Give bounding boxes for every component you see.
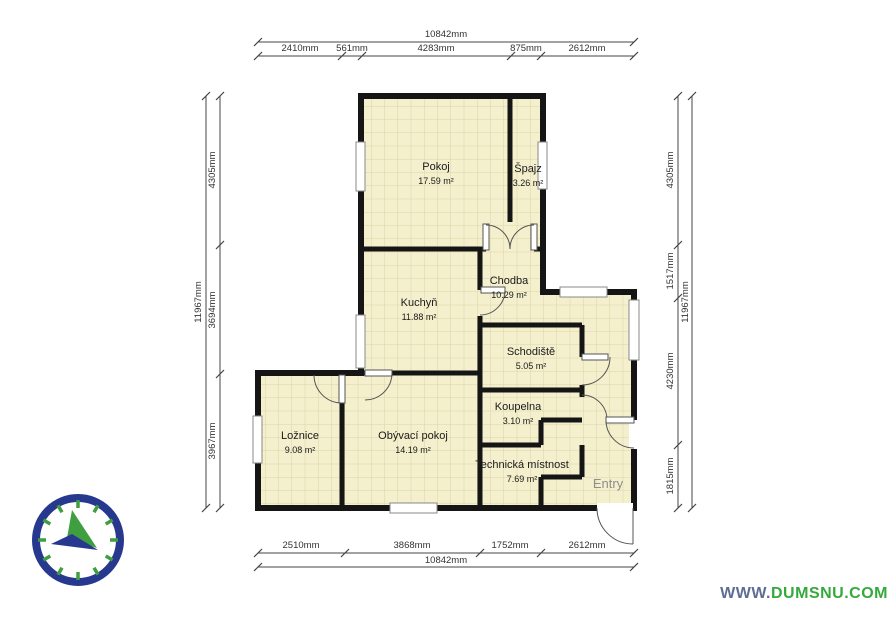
watermark-suffix: .COM	[844, 585, 888, 602]
floorplan-page: 10842mm 2410mm 561mm 4283mm 875mm 2612mm…	[0, 0, 894, 625]
floorplan-canvas: 10842mm 2410mm 561mm 4283mm 875mm 2612mm…	[0, 0, 894, 625]
dim-right-seg-1: 1517mm	[665, 252, 676, 289]
window-pokoj	[356, 142, 365, 191]
dim-top-seg-1: 561mm	[336, 43, 368, 54]
watermark-url: WWW.DUMSNU.COM	[720, 585, 888, 602]
window-chodba	[560, 287, 607, 297]
room-label-schodiste: Schodiště	[507, 346, 555, 358]
room-label-loznice: Ložnice	[281, 430, 319, 442]
door-arc-entry	[597, 508, 633, 544]
dim-left-total: 11967mm	[193, 281, 204, 323]
room-area-schodiste: 5.05 m²	[516, 361, 547, 371]
door-leaf-schodiste	[582, 354, 608, 360]
dim-left-seg-0: 4305mm	[207, 151, 218, 188]
dim-bottom-seg-3: 2612mm	[569, 540, 606, 551]
dim-left-seg-2: 3967mm	[207, 422, 218, 459]
door-gap-entry	[597, 503, 633, 513]
dim-right-seg-0: 4305mm	[665, 151, 676, 188]
dim-right-seg-3: 1815mm	[665, 457, 676, 494]
dim-top-total: 10842mm	[425, 29, 467, 40]
dim-bottom-seg-2: 1752mm	[492, 540, 529, 551]
room-area-loznice: 9.08 m²	[285, 445, 316, 455]
room-area-spajz: 3.26 m²	[513, 178, 544, 188]
dimension-right: 4305mm 1517mm 4230mm 1815mm 11967mm	[665, 92, 696, 512]
door-leaf-pokoj	[483, 224, 489, 250]
room-label-entry: Entry	[593, 476, 624, 491]
dim-top-seg-2: 4283mm	[418, 43, 455, 54]
dim-right-seg-2: 4230mm	[665, 352, 676, 389]
dim-top-seg-0: 2410mm	[282, 43, 319, 54]
room-label-koupelna: Koupelna	[495, 401, 542, 413]
door-gap-side	[629, 420, 639, 449]
dim-right-total: 11967mm	[680, 281, 691, 323]
door-leaf-loznice	[339, 375, 345, 403]
window-loznice	[253, 416, 262, 463]
dimension-top: 10842mm 2410mm 561mm 4283mm 875mm 2612mm	[254, 29, 638, 60]
room-area-obyvaci: 14.19 m²	[395, 445, 431, 455]
window-schodiste	[629, 300, 639, 360]
room-label-spajz: Špajz	[514, 162, 542, 175]
watermark-prefix: WWW.	[720, 585, 771, 602]
room-label-kuchyn: Kuchyň	[401, 297, 438, 309]
room-area-koupelna: 3.10 m²	[503, 416, 534, 426]
window-obyvaci	[390, 503, 437, 513]
dim-left-seg-1: 3694mm	[207, 291, 218, 328]
dim-top-seg-4: 2612mm	[569, 43, 606, 54]
door-leaf-side	[606, 417, 634, 423]
floorplan: Pokoj 17.59 m² Špajz 3.26 m² Chodba 10.2…	[253, 96, 639, 544]
room-label-chodba: Chodba	[490, 275, 529, 287]
door-leaf-spajz	[531, 224, 537, 250]
dimension-bottom: 2510mm 3868mm 1752mm 2612mm 10842mm	[254, 540, 638, 571]
room-area-technicka: 7.69 m²	[507, 474, 538, 484]
room-area-kuchyn: 11.88 m²	[402, 312, 437, 322]
compass-icon	[36, 498, 120, 582]
dimension-left: 11967mm 4305mm 3694mm 3967mm	[193, 92, 224, 512]
watermark-name: DUMSNU	[771, 585, 844, 602]
room-label-pokoj: Pokoj	[422, 161, 450, 173]
room-label-technicka: Technická místnost	[475, 459, 569, 471]
door-leaf-kuchyn-obyvaci	[365, 370, 392, 376]
room-label-obyvaci: Obývací pokoj	[378, 430, 448, 442]
dim-bottom-seg-1: 3868mm	[394, 540, 431, 551]
dim-bottom-seg-0: 2510mm	[283, 540, 320, 551]
room-area-chodba: 10.29 m²	[491, 290, 527, 300]
window-kuchyn	[356, 315, 365, 368]
dim-bottom-total: 10842mm	[425, 555, 467, 566]
room-area-pokoj: 17.59 m²	[418, 176, 454, 186]
